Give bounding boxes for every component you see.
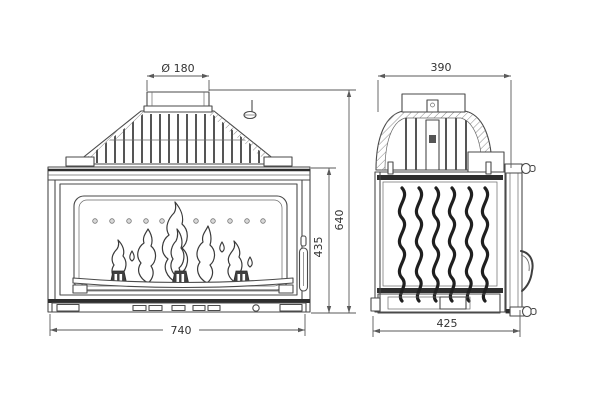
corner-bolt: [486, 162, 491, 174]
technical-drawing: Ø 180 390 640 435: [0, 0, 600, 400]
side-handle: [521, 251, 533, 291]
side-base: [371, 294, 500, 313]
dim-label-top-width: 390: [431, 61, 452, 74]
dome-center-duct: [426, 120, 439, 170]
front-heat-exchanger: [66, 110, 292, 166]
drawing-svg: Ø 180 390 640 435: [0, 0, 600, 400]
front-door-handle: [300, 236, 308, 291]
bottom-latch-knob: [510, 307, 536, 317]
side-dome: [376, 111, 504, 172]
dim-label-front-width: 740: [171, 324, 192, 337]
corner-bolt: [388, 162, 393, 174]
dim-firebox-height: 435: [311, 168, 336, 313]
right-slope-bracket: [264, 157, 292, 166]
dim-depth: 425: [373, 310, 520, 337]
dim-label-firebox-height: 435: [312, 237, 325, 258]
dim-label-flue: Ø 180: [161, 62, 194, 75]
ash-drawer-knob: [253, 305, 259, 311]
dim-label-depth: 425: [437, 317, 458, 330]
front-flue-collar: [144, 92, 212, 112]
grate-bracket-left: [73, 285, 87, 293]
left-slope-bracket: [66, 157, 94, 166]
dim-flue-diameter: Ø 180: [147, 62, 209, 91]
dim-label-overall-height: 640: [333, 210, 346, 231]
dim-front-width: 740: [50, 314, 305, 337]
side-flue-collar: [402, 94, 465, 112]
damper-knob: [244, 100, 256, 119]
side-fins: [399, 188, 487, 301]
dome-duct-detail: [429, 135, 436, 143]
side-door-frame: [506, 166, 522, 313]
side-foot: [371, 298, 380, 311]
front-base: [48, 299, 310, 312]
top-hinge-pin: [505, 164, 535, 174]
grate-bracket-right: [279, 285, 293, 293]
front-view: [48, 92, 310, 312]
